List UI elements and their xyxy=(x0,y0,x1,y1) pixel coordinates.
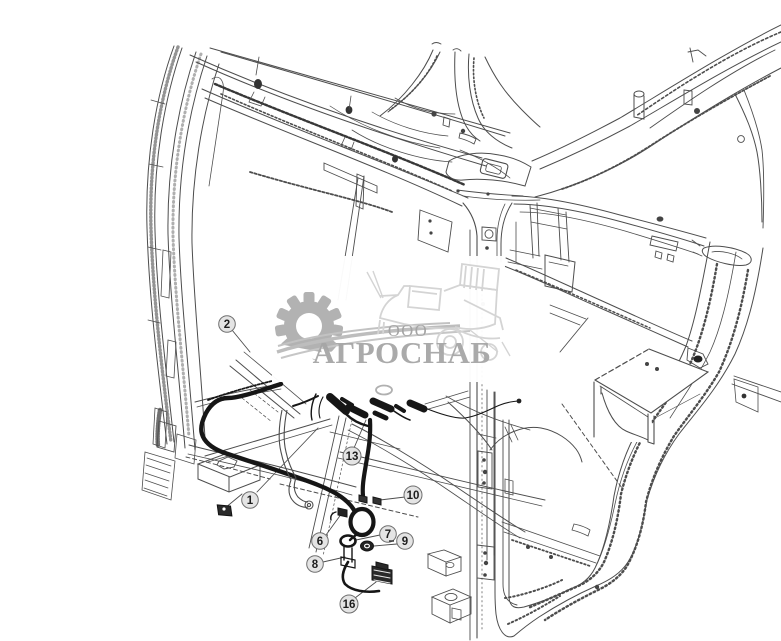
svg-text:13: 13 xyxy=(346,451,359,463)
svg-text:6: 6 xyxy=(317,536,323,548)
svg-text:2: 2 xyxy=(224,319,230,331)
svg-text:8: 8 xyxy=(312,559,319,571)
svg-text:1: 1 xyxy=(247,495,254,507)
svg-text:10: 10 xyxy=(407,490,420,502)
svg-text:АГРОСНАБ: АГРОСНАБ xyxy=(313,335,492,370)
svg-text:7: 7 xyxy=(385,529,391,541)
svg-text:9: 9 xyxy=(402,536,408,548)
svg-text:16: 16 xyxy=(343,599,356,611)
